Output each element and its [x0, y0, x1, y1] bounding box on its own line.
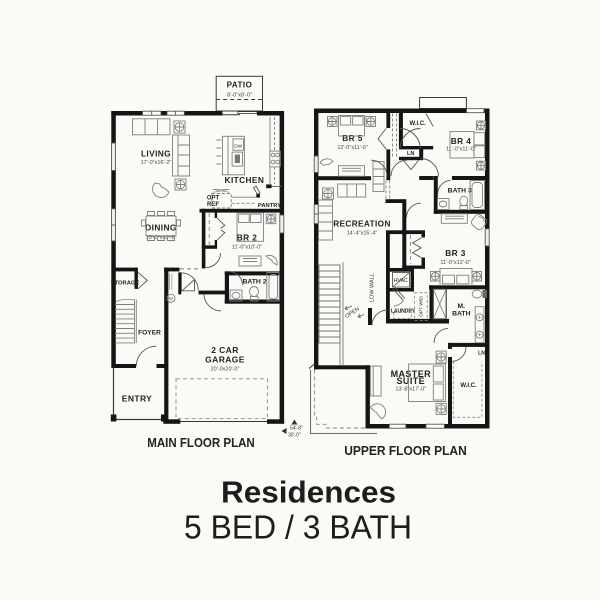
- svg-text:BATH 2: BATH 2: [242, 279, 266, 286]
- svg-text:12'-0"x11'-0": 12'-0"x11'-0": [337, 145, 367, 151]
- svg-text:PATIO: PATIO: [227, 81, 253, 90]
- svg-text:SUITE: SUITE: [397, 376, 426, 386]
- svg-text:M.: M.: [458, 303, 466, 310]
- svg-text:BR 5: BR 5: [342, 133, 363, 143]
- svg-text:KITCHEN: KITCHEN: [225, 175, 265, 185]
- svg-text:LOW WALL: LOW WALL: [370, 273, 376, 302]
- svg-text:8'-0"x8'-0": 8'-0"x8'-0": [227, 93, 252, 99]
- svg-text:11'-0"x10'-0": 11'-0"x10'-0": [232, 245, 262, 251]
- svg-text:BATH: BATH: [452, 311, 470, 318]
- svg-text:UPPER FLOOR PLAN: UPPER FLOOR PLAN: [344, 443, 467, 458]
- svg-text:14'-4"x15'-4": 14'-4"x15'-4": [347, 231, 378, 237]
- svg-text:LN: LN: [478, 351, 485, 357]
- svg-text:MAIN FLOOR PLAN: MAIN FLOOR PLAN: [147, 435, 255, 450]
- svg-text:20'-0x20'-0": 20'-0x20'-0": [211, 366, 240, 372]
- svg-text:W: W: [169, 296, 173, 301]
- svg-text:BR 3: BR 3: [445, 248, 466, 258]
- svg-text:W.I.C.: W.I.C.: [460, 383, 477, 389]
- svg-text:ENTRY: ENTRY: [122, 394, 153, 404]
- svg-text:BATH 3: BATH 3: [448, 188, 472, 195]
- svg-text:13'-8"x17'-0": 13'-8"x17'-0": [395, 386, 426, 392]
- svg-text:5 BED / 3 BATH: 5 BED / 3 BATH: [184, 510, 412, 547]
- svg-text:11'-0"x11'-0": 11'-0"x11'-0": [446, 147, 476, 153]
- svg-text:BR 4: BR 4: [451, 136, 472, 146]
- svg-text:LIVING: LIVING: [141, 149, 171, 159]
- svg-text:11'-0"x12'-0": 11'-0"x12'-0": [440, 260, 470, 266]
- svg-text:LN: LN: [407, 151, 414, 157]
- svg-text:FOYER: FOYER: [138, 330, 161, 337]
- svg-text:OPT: OPT: [207, 196, 220, 202]
- svg-text:HVAC: HVAC: [394, 278, 408, 284]
- svg-text:17'-0"x16'-2": 17'-0"x16'-2": [141, 160, 172, 166]
- svg-text:30'-0": 30'-0": [288, 433, 301, 439]
- svg-text:LAUNDRY: LAUNDRY: [391, 308, 416, 314]
- svg-text:PANTRY: PANTRY: [258, 203, 281, 209]
- svg-text:54'-8": 54'-8": [290, 426, 303, 432]
- svg-text:DW: DW: [234, 144, 242, 150]
- svg-text:OPT W/D: OPT W/D: [418, 296, 424, 317]
- svg-text:RECREATION: RECREATION: [333, 220, 391, 229]
- svg-text:STORAGE: STORAGE: [111, 280, 140, 286]
- svg-text:W.I.C.: W.I.C.: [410, 121, 427, 127]
- svg-text:Residences: Residences: [221, 475, 396, 510]
- svg-text:GARAGE: GARAGE: [205, 354, 245, 364]
- svg-text:DINING: DINING: [145, 223, 176, 233]
- svg-text:REF: REF: [207, 202, 219, 208]
- svg-text:2 CAR: 2 CAR: [211, 345, 239, 355]
